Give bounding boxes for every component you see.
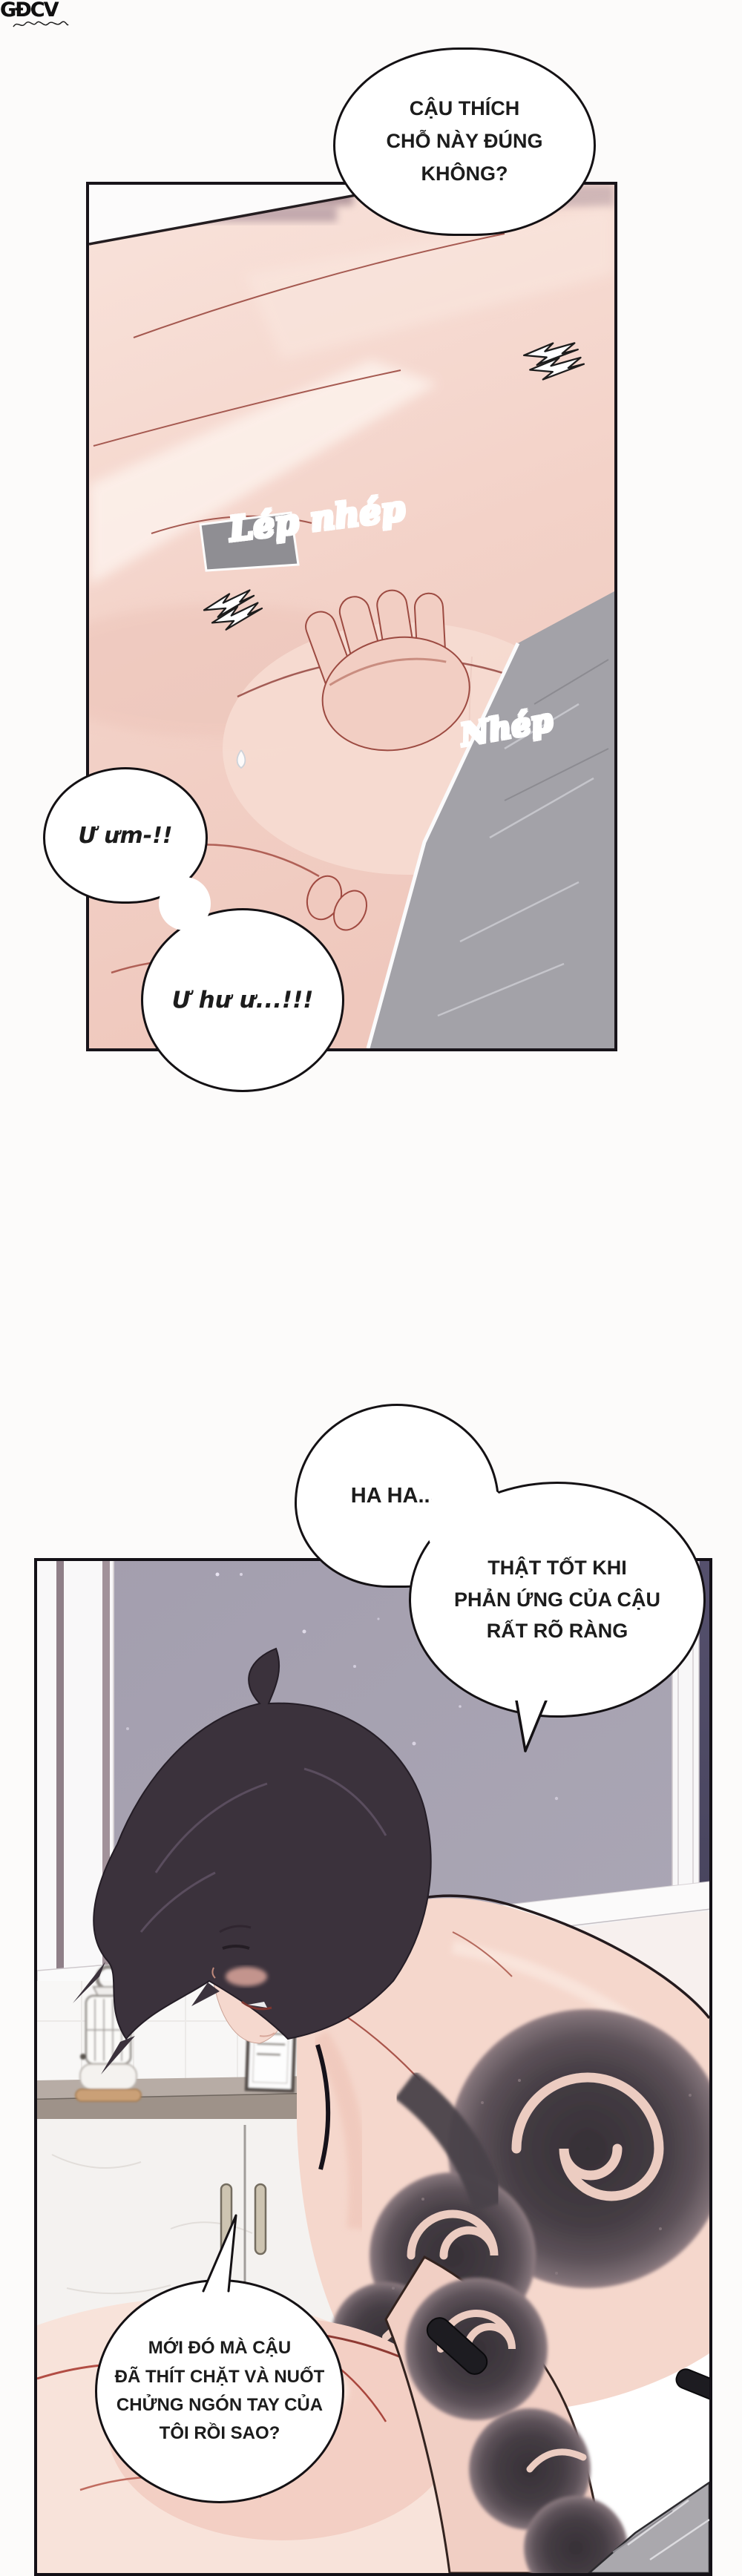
watermark-panel2: GĐCV	[0, 0, 70, 30]
speech-bubble-question: MỚI ĐÓ MÀ CẬU ĐÃ THÍT CHẶT VÀ NUỐT CHỬNG…	[95, 2279, 344, 2503]
moan-bubble-large: Ư hư ư...!!!	[141, 908, 344, 1092]
bubble-merge-patch	[427, 1484, 508, 1561]
bubble-line: CHỬNG NGÓN TAY CỦA	[116, 2391, 323, 2419]
bubble-line: PHẢN ỨNG CỦA CẬU	[454, 1584, 660, 1616]
speech-bubble-top: CẬU THÍCH CHỖ NÀY ĐÚNG KHÔNG?	[333, 47, 596, 236]
speech-bubble-question-tail	[194, 2212, 248, 2296]
bubble-line: MỚI ĐÓ MÀ CẬU	[148, 2334, 291, 2362]
bubble-line: KHÔNG?	[421, 158, 508, 191]
bubble-merge-patch	[159, 877, 211, 930]
bubble-line: THẬT TỐT KHI	[487, 1552, 626, 1584]
speech-bubble-reply-tail	[512, 1701, 556, 1754]
watermark-logo-text: GĐCV	[0, 0, 70, 20]
bubble-line: RẤT RÕ RÀNG	[487, 1615, 628, 1647]
bubble-line: Ư hư ư...!!!	[172, 987, 314, 1013]
bubble-line: Ư ưm-!!	[78, 823, 172, 849]
bubble-line: CHỖ NÀY ĐÚNG	[386, 125, 542, 158]
bubble-line: ĐÃ THÍT CHẶT VÀ NUỐT	[115, 2363, 325, 2391]
bubble-line: CẬU THÍCH	[410, 93, 520, 125]
comic-page: GĐCV	[0, 0, 742, 2576]
bubble-line: TÔI RỒI SAO?	[160, 2419, 280, 2448]
